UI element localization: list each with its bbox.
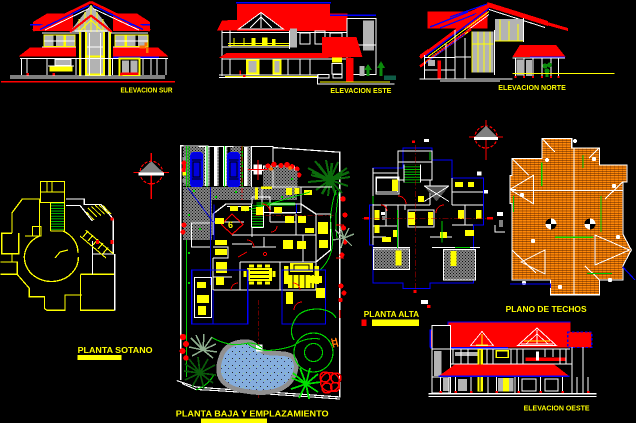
svg-text:ELEVACION OESTE: ELEVACION OESTE <box>524 406 590 413</box>
svg-text:ELEVACION ESTE: ELEVACION ESTE <box>330 88 391 95</box>
svg-text:6: 6 <box>228 220 233 230</box>
svg-text:ELEVACION NORTE: ELEVACION NORTE <box>498 85 566 92</box>
svg-text:PLANTA BAJA Y EMPLAZAMIENTO: PLANTA BAJA Y EMPLAZAMIENTO <box>176 409 329 419</box>
svg-text:PLANTA ALTA: PLANTA ALTA <box>364 309 419 319</box>
svg-text:PLANO DE TECHOS: PLANO DE TECHOS <box>506 304 587 314</box>
svg-text:PLANTA SOTANO: PLANTA SOTANO <box>78 345 153 355</box>
svg-text:ELEVACION SUR: ELEVACION SUR <box>121 88 173 95</box>
